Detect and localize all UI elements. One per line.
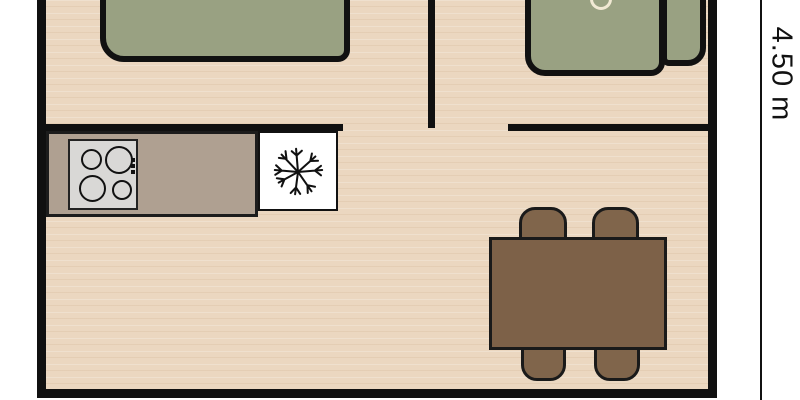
refrigerator — [258, 131, 338, 211]
wall-bedroom-partition — [428, 0, 435, 128]
cooktop — [68, 139, 138, 210]
dining-table — [489, 237, 667, 350]
burner — [112, 180, 132, 200]
stove-knob — [131, 170, 135, 174]
burner — [105, 146, 133, 174]
dimension-line — [760, 0, 762, 400]
snowflake-icon — [269, 142, 327, 200]
floorplan: 4.50 m — [0, 0, 800, 400]
chair — [521, 347, 566, 381]
sofa-armrest — [661, 0, 706, 66]
wall-kitchen-partition — [37, 124, 343, 131]
sofa-seat — [525, 0, 665, 76]
wall-bottom — [37, 389, 717, 398]
stove-knob — [131, 158, 135, 162]
wall-living-partition — [508, 124, 717, 131]
chair — [594, 347, 640, 381]
burner — [81, 149, 102, 170]
wall-right — [708, 0, 717, 398]
burner — [79, 175, 106, 202]
bed — [100, 0, 350, 62]
wall-left — [37, 0, 46, 398]
stove-knob — [131, 164, 135, 168]
dimension-label: 4.50 m — [765, 27, 798, 122]
